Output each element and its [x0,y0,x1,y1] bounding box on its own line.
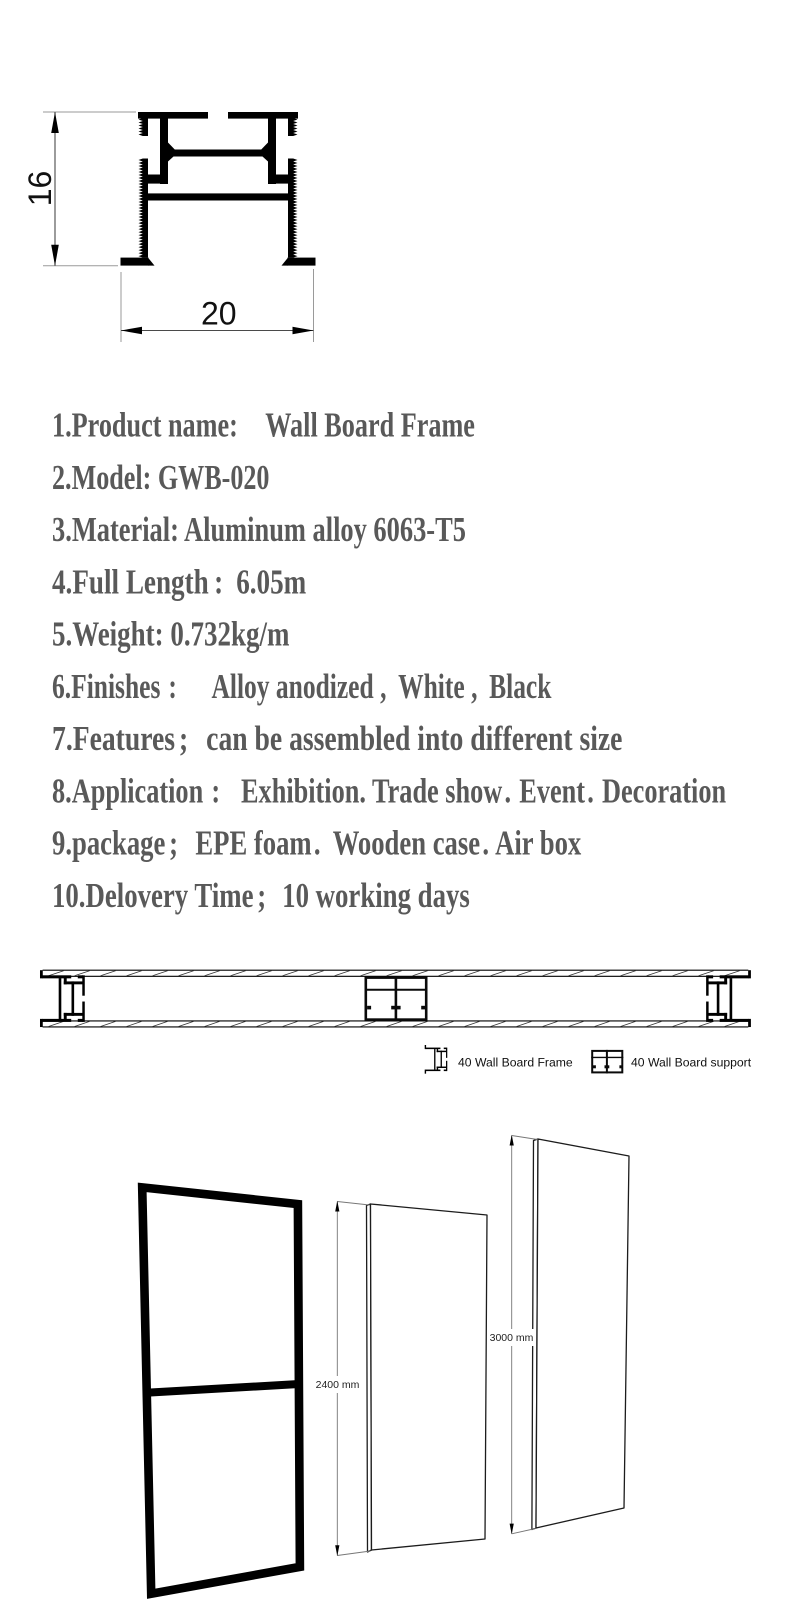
svg-text:10.Delovery Time;10 working da: 10.Delovery Time;10 working days [52,875,470,914]
svg-text:2.Model: GWB-020: 2.Model: GWB-020 [52,457,269,497]
svg-text:6.Finishes:Alloy anodized,Whit: 6.Finishes:Alloy anodized,White,Black [52,667,552,706]
svg-text:8.Application:Exhibition. Trad: 8.Application:Exhibition. Trade show.Eve… [52,771,726,811]
svg-text:3.Material: Aluminum alloy 606: 3.Material: Aluminum alloy 6063-T5 [52,510,466,550]
svg-text:9.package;EPE foam.Wooden case: 9.package;EPE foam.Wooden case.Air box [52,823,582,862]
svg-text:3000 mm: 3000 mm [490,1332,534,1344]
svg-text:2400 mm: 2400 mm [316,1379,360,1391]
svg-text:40 Wall Board support: 40 Wall Board support [631,1056,752,1070]
svg-text:1.Product name:Wall Board Fram: 1.Product name:Wall Board Frame [52,405,475,445]
svg-text:20: 20 [201,296,237,332]
svg-text:5.Weight: 0.732kg/m: 5.Weight: 0.732kg/m [52,614,289,653]
svg-text:4.Full Length:6.05m: 4.Full Length:6.05m [52,562,306,601]
svg-text:7.Features;can be assembled in: 7.Features;can be assembled into differe… [52,719,622,758]
svg-text:40 Wall Board Frame: 40 Wall Board Frame [458,1056,573,1070]
svg-text:16: 16 [22,171,58,207]
